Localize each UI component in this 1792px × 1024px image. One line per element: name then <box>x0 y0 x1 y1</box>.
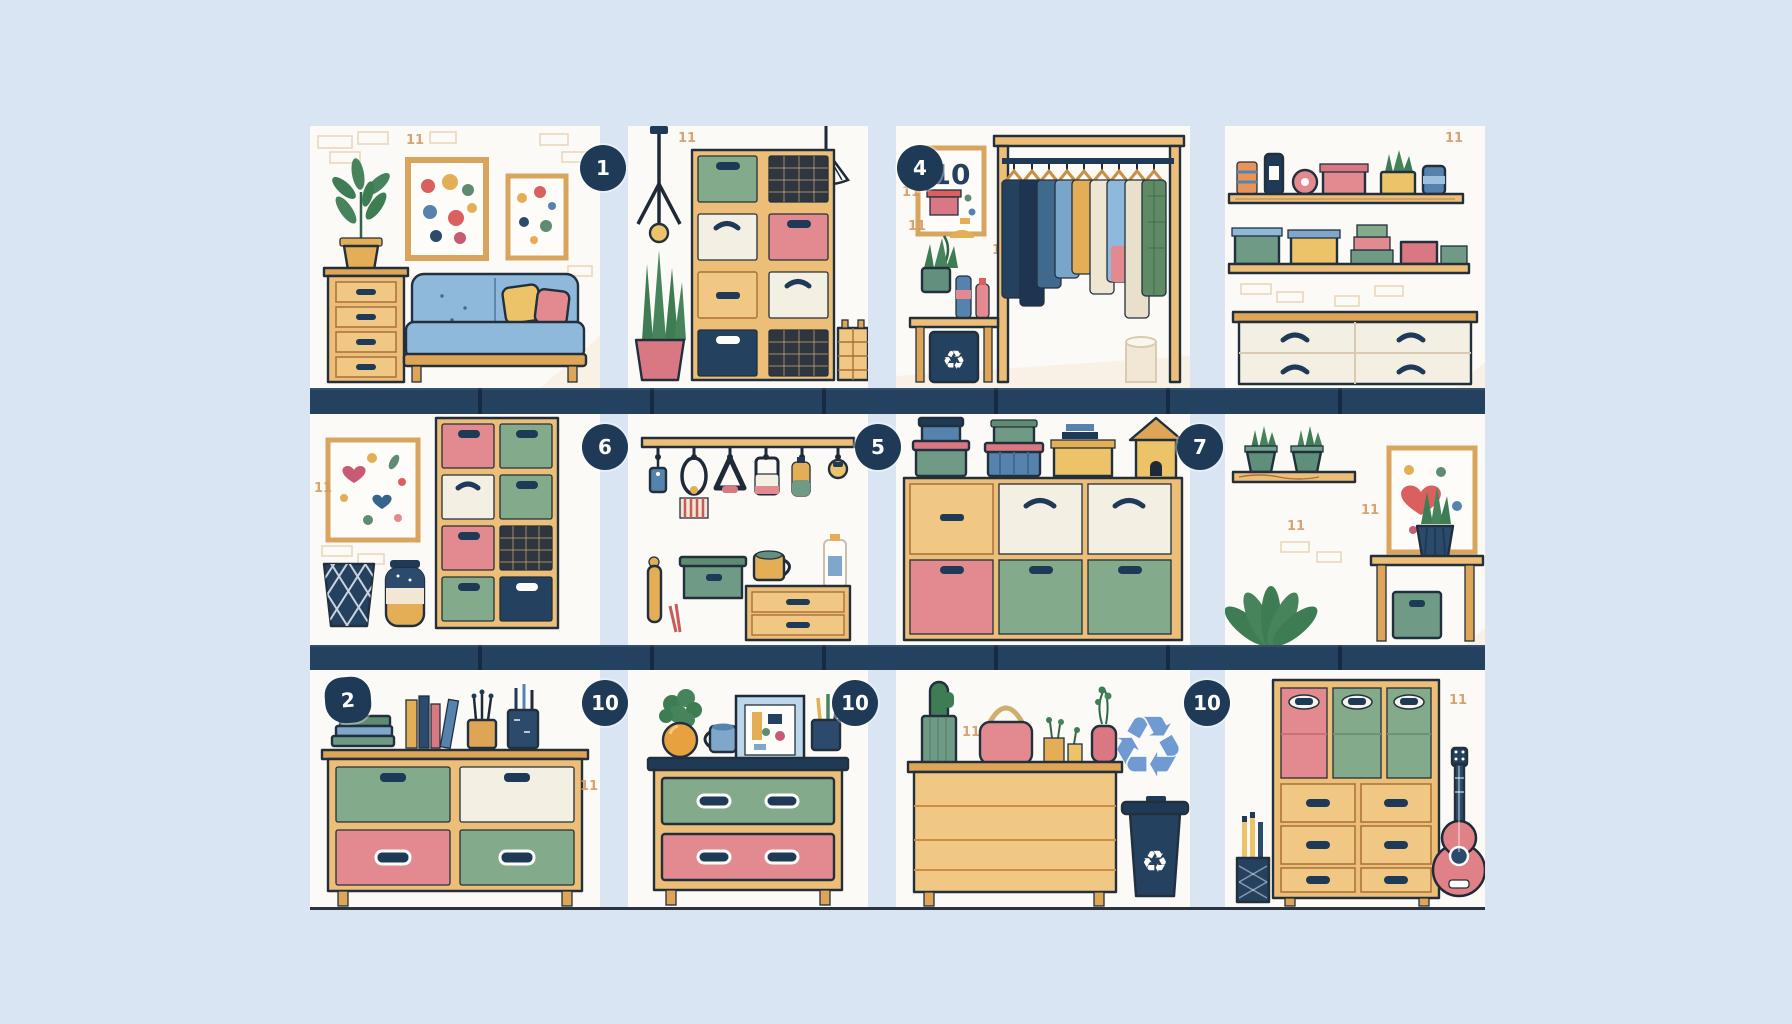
shelf-bar-2 <box>310 645 1485 670</box>
potted-plant <box>659 689 702 757</box>
storage-bin-under-table <box>1393 592 1441 638</box>
wall-art-frame <box>508 176 566 258</box>
artifact-mark: 11 <box>908 219 926 234</box>
wall-art-frame <box>408 160 486 258</box>
step-badge: 4 <box>897 145 943 191</box>
brush-cup <box>468 690 496 749</box>
pen-cup <box>508 684 538 748</box>
pillow-pink <box>534 288 570 326</box>
photo-frame <box>736 696 804 764</box>
paper-roll <box>1126 337 1156 382</box>
sofa <box>404 274 586 382</box>
panel-plant-corner: 11 11 <box>1225 414 1485 645</box>
artifact-mark: 11 <box>314 481 332 496</box>
recycle-icon: ♻ <box>942 346 965 376</box>
panel-tall-cabinet-guitar: 11 <box>1225 670 1485 910</box>
pencils <box>670 604 680 632</box>
mug <box>754 551 790 580</box>
artifact-mark: 11 <box>1449 693 1467 708</box>
artifact-mark: 11 <box>406 133 424 148</box>
brick-wall-marks <box>1241 284 1403 306</box>
step-badge: 2 <box>323 675 372 724</box>
small-pots <box>1044 717 1082 762</box>
white-dresser <box>1233 312 1477 384</box>
cube-storage-shelf <box>692 150 834 380</box>
artifact-mark: 11 <box>678 131 696 146</box>
panel-wall-hooks <box>628 414 868 645</box>
mug <box>705 724 736 753</box>
recycle-icon: ♻ <box>1110 698 1185 796</box>
shelf-bar-1 <box>310 388 1485 414</box>
plain-dresser <box>908 762 1122 906</box>
step-badge: 10 <box>832 680 878 726</box>
hook-rail <box>642 438 854 460</box>
artifact-mark: 11 <box>580 779 598 794</box>
tripod-pendant-lamp <box>638 126 680 242</box>
handbag <box>980 708 1032 764</box>
upright-books <box>406 696 458 748</box>
stacked-tubs-b <box>985 420 1043 476</box>
step-badge: 7 <box>1177 424 1223 470</box>
bottle <box>824 534 846 588</box>
step-badge: 6 <box>582 424 628 470</box>
step-badge: 10 <box>582 680 628 726</box>
artifact-mark: 11 <box>962 725 980 740</box>
brick-wall-marks <box>1281 542 1341 562</box>
wall-art-frame <box>328 440 418 540</box>
artifact-mark: 11 <box>1287 519 1305 534</box>
striped-vase <box>386 560 424 626</box>
step-badge: 5 <box>855 424 901 470</box>
hanging-accessories <box>650 457 847 518</box>
panel-wall-shelves-dresser: 11 <box>1225 126 1485 388</box>
recycle-bin: ♻ <box>930 332 978 382</box>
floor-line <box>310 907 1485 910</box>
pencil-cup <box>1237 812 1269 902</box>
panel-art-and-cubes: 11 <box>310 414 600 645</box>
drawer-cart <box>324 268 408 382</box>
panel-living-room: 11 <box>310 126 600 388</box>
illustration-stage: 11 <box>0 0 1792 1024</box>
snake-plant <box>636 250 686 380</box>
woven-basket <box>838 320 868 380</box>
box-with-books <box>1051 424 1115 476</box>
potted-plant <box>329 157 393 270</box>
step-badge: 1 <box>580 145 626 191</box>
cube-storage-shelf <box>436 418 558 628</box>
wall-shelf-top <box>1229 150 1463 203</box>
bin-cabinet <box>322 750 588 906</box>
plant-shelf <box>1233 426 1355 482</box>
cactus <box>922 682 956 764</box>
cube-unit <box>904 478 1182 640</box>
panel-cube-shelf-lamps: 11 <box>628 126 868 388</box>
floor-plant <box>1225 586 1323 645</box>
recycle-icon: ♻ <box>1142 845 1169 880</box>
stacked-tubs-a <box>913 418 969 476</box>
storage-box <box>680 557 746 598</box>
recycle-symbol: ♻ <box>1110 698 1185 796</box>
artifact-mark: 11 <box>1445 131 1463 146</box>
mini-drawer-chest <box>746 586 850 640</box>
panel-stacked-containers <box>896 414 1190 645</box>
bin-and-drawer-cabinet <box>1273 680 1439 906</box>
step-badge: 10 <box>1184 680 1230 726</box>
artifact-mark: 11 <box>1361 503 1379 518</box>
wall-shelf-middle <box>1229 225 1469 273</box>
hanging-garments <box>1002 164 1166 318</box>
woven-waste-basket <box>316 556 386 630</box>
guitar <box>1433 748 1485 896</box>
panel-recycle-corner: 11 <box>896 670 1190 910</box>
birdhouse <box>1130 418 1182 478</box>
wheelie-bin: ♻ <box>1122 796 1188 896</box>
dresser <box>648 758 848 905</box>
rolling-pin <box>648 557 661 622</box>
